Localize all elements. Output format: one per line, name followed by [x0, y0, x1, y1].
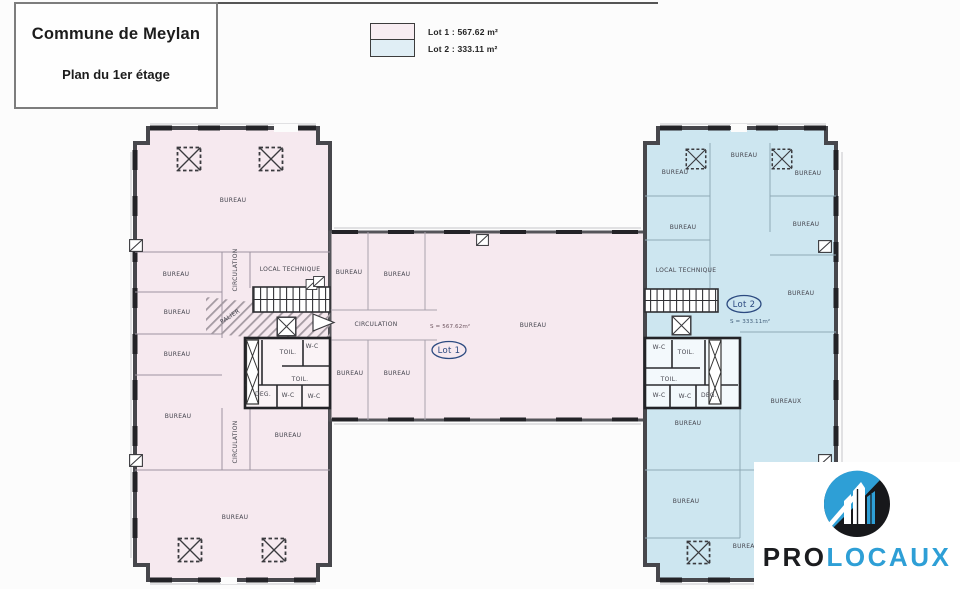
room-label: BUREAU: [337, 370, 363, 377]
room-label: DEG.: [255, 391, 271, 398]
lot1-swatch: [370, 23, 415, 40]
prolocaux-logo: PROLOCAUX: [754, 462, 960, 589]
logo-text-pro: PRO: [763, 542, 827, 572]
elevator-icon: [672, 316, 691, 335]
room-label: LOCAL TECHNIQUE: [260, 266, 320, 273]
room-label: BUREAU: [165, 413, 191, 420]
room-label: TOIL.: [677, 349, 695, 356]
room-label: BUREAU: [795, 170, 821, 177]
room-label: W-C: [653, 392, 666, 399]
room-label: W-C: [653, 344, 666, 351]
room-label: BUREAUX: [771, 398, 802, 405]
room-label: BUREAU: [731, 152, 757, 159]
room-label: W-C: [282, 392, 295, 399]
room-label: BUREAU: [788, 290, 814, 297]
room-label: BUREAU: [675, 420, 701, 427]
room-label: W-C: [679, 393, 692, 400]
lot1-legend-label: Lot 1 : 567.62 m²: [428, 27, 498, 37]
legend: Lot 1 : 567.62 m² Lot 2 : 333.11 m²: [370, 23, 498, 57]
door-icon: [130, 455, 143, 467]
legend-row-lot2: Lot 2 : 333.11 m²: [370, 40, 498, 57]
room-label: BUREAU: [520, 322, 546, 329]
title-block: Commune de Meylan Plan du 1er étage: [14, 2, 218, 109]
room-label: DEG.: [701, 392, 717, 399]
room-label: CIRCULATION: [355, 321, 398, 328]
lot1-area-label: S = 567.62m²: [430, 323, 470, 330]
lot2-legend-label: Lot 2 : 333.11 m²: [428, 44, 498, 54]
lot2-label: Lot 2: [733, 300, 756, 310]
room-label: CIRCULATION: [232, 421, 239, 464]
lot2-swatch: [370, 40, 415, 57]
room-label: TOIL.: [279, 349, 297, 356]
lot2-area-label: S = 333.11m²: [730, 318, 770, 325]
room-label: BUREAU: [384, 370, 410, 377]
room-label: CIRCULATION: [232, 249, 239, 292]
plan-title: Commune de Meylan: [16, 25, 216, 44]
stairs-right: [645, 289, 718, 312]
room-label: BUREAU: [275, 432, 301, 439]
room-label: BUREAU: [220, 197, 246, 204]
prolocaux-logo-text: PROLOCAUX: [763, 544, 952, 570]
room-label: BUREAU: [164, 351, 190, 358]
room-label: TOIL.: [291, 376, 309, 383]
scan-edge-line: [216, 2, 658, 4]
room-label: BUREAU: [793, 221, 819, 228]
room-label: LOCAL TECHNIQUE: [656, 267, 716, 274]
room-label: W-C: [306, 343, 319, 350]
elevator-icon: [277, 317, 296, 336]
prolocaux-logo-mark-icon: [820, 467, 894, 541]
room-label: BUREAU: [662, 169, 688, 176]
plan-subtitle: Plan du 1er étage: [16, 67, 216, 82]
door-icon: [130, 240, 143, 252]
logo-text-locaux: LOCAUX: [827, 542, 952, 572]
room-label: BUREAU: [222, 514, 248, 521]
lot1-label: Lot 1: [438, 346, 461, 356]
room-label: BUREAU: [336, 269, 362, 276]
door-icon: [477, 235, 489, 246]
scanned-floor-plan-page: { "title_block": { "line1": "Commune de …: [0, 0, 960, 589]
room-label: BUREAU: [670, 224, 696, 231]
door-icon: [819, 241, 832, 253]
door-icon: [314, 277, 325, 287]
legend-row-lot1: Lot 1 : 567.62 m²: [370, 23, 498, 40]
room-label: W-C: [308, 393, 321, 400]
stairs-left: [253, 287, 330, 312]
room-label: BUREAU: [384, 271, 410, 278]
room-label: TOIL.: [660, 376, 678, 383]
room-label: BUREAU: [163, 271, 189, 278]
room-label: BUREAU: [673, 498, 699, 505]
room-label: BUREAU: [164, 309, 190, 316]
